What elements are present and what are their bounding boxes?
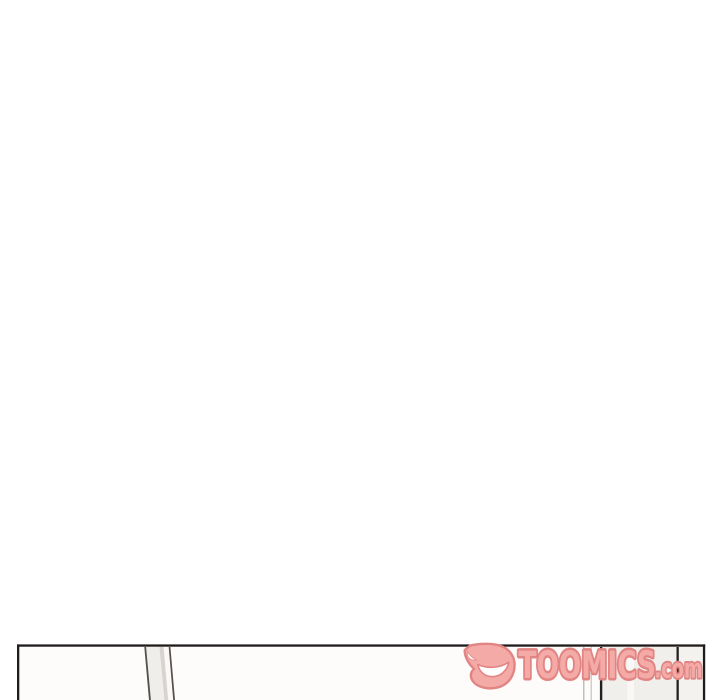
toomics-wordmark: TOOMICS (519, 644, 657, 687)
door-frame (144, 647, 175, 700)
panel-border-right (703, 644, 705, 700)
webtoon-page: TOOMICS .com (0, 0, 720, 700)
panel-border-left (17, 644, 19, 700)
toomics-domain-suffix: .com (655, 654, 703, 685)
comic-panel-graphic: TOOMICS .com (0, 0, 720, 700)
